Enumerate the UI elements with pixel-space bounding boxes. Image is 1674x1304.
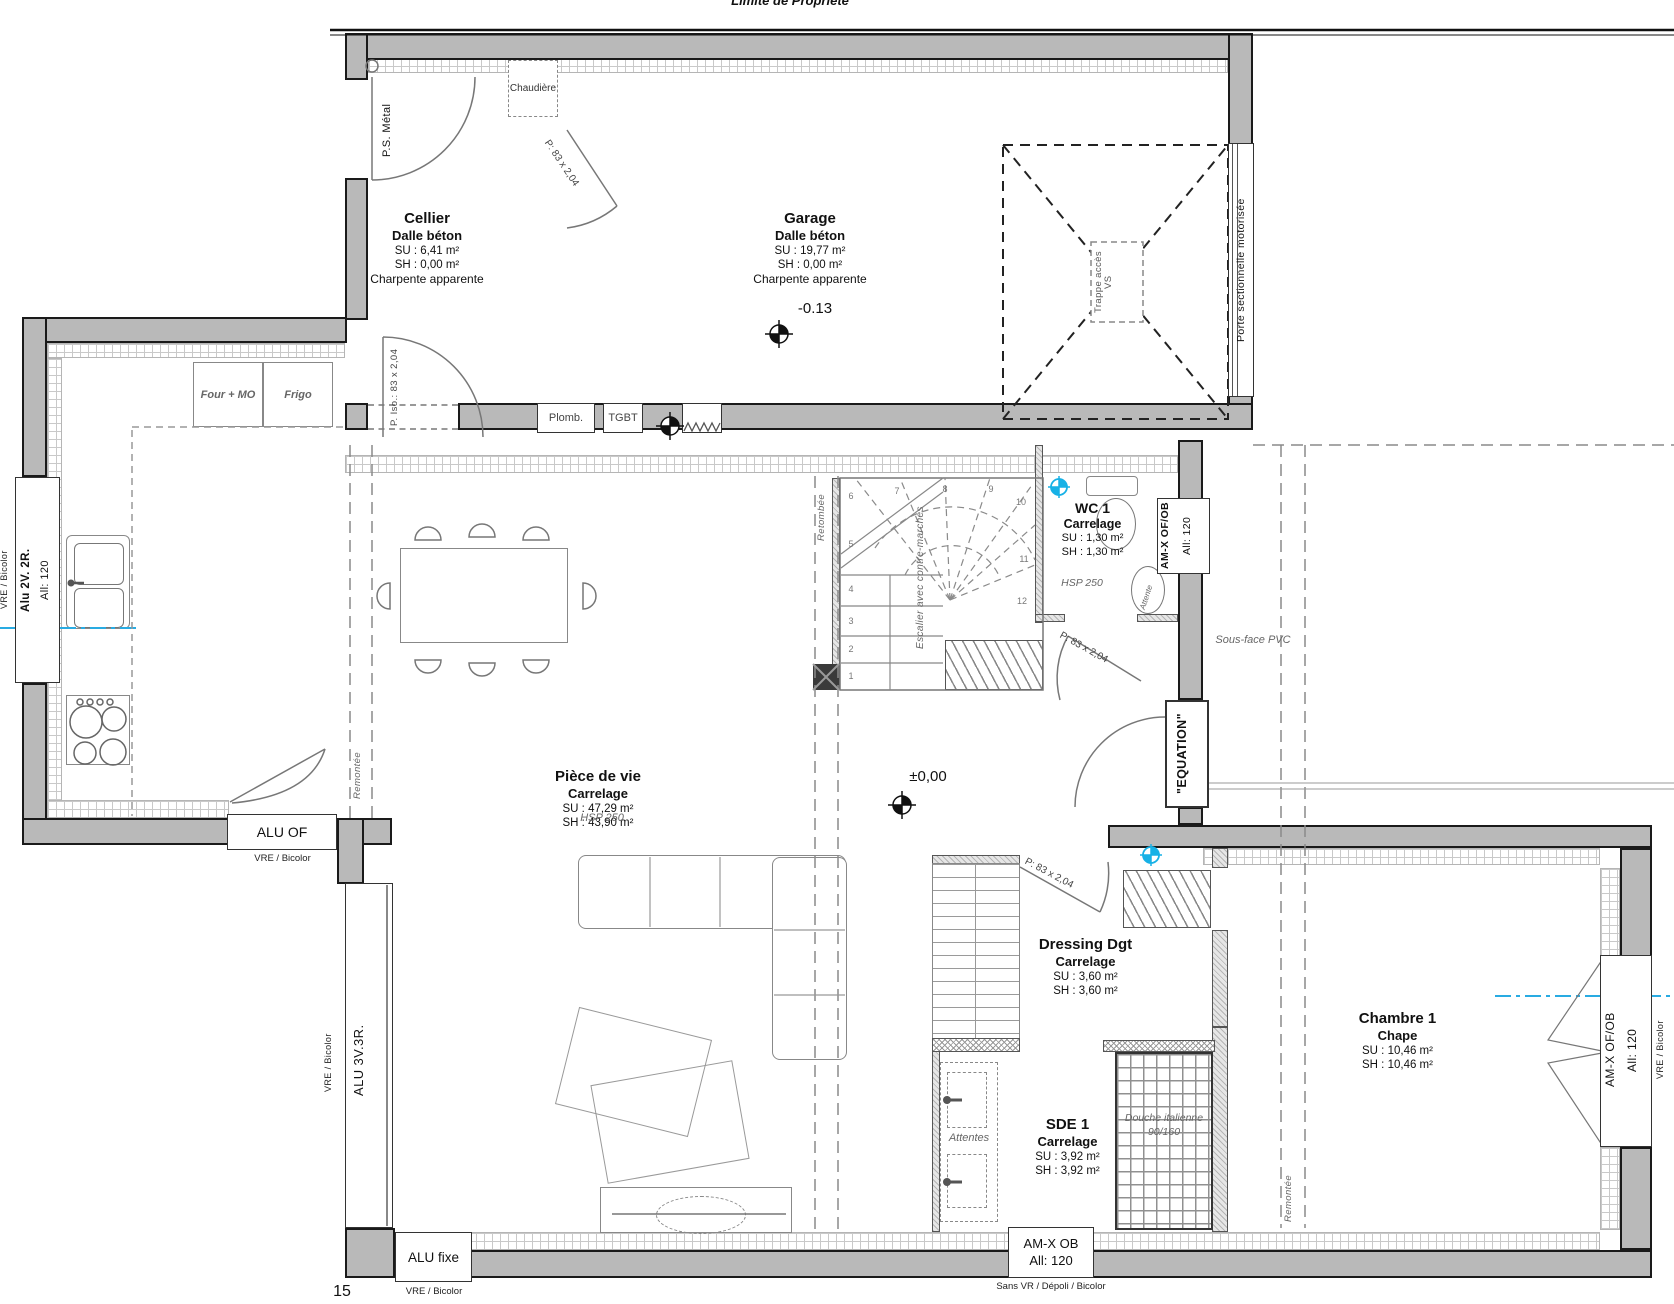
pass-through <box>368 404 458 430</box>
room-chambre1: Chambre 1 Chape SU : 10,46 m² SH : 10,46… <box>1315 1010 1480 1072</box>
radiator-box <box>682 403 722 433</box>
room-sh: SH : 0,00 m² <box>347 258 507 272</box>
insulation-hatch <box>1600 1147 1620 1230</box>
wall-corner-sw <box>345 1228 395 1278</box>
window-kitchen-left-allege: All: 120 <box>40 495 54 665</box>
room-floor: Carrelage <box>498 786 698 802</box>
wall-garage-right-upper <box>1228 33 1253 145</box>
sofa-chaise <box>772 857 847 1060</box>
room-floor: Carrelage <box>1003 954 1168 970</box>
door-ps-metal-label: P.S. Métal <box>382 92 398 168</box>
window-chambre-note: VRE / Bicolor <box>1656 1005 1669 1095</box>
level-garage: -0.13 <box>780 300 850 318</box>
stair-step-6: 6 <box>843 491 859 502</box>
stair-step-10: 10 <box>1011 497 1031 508</box>
douche-label: Douche italienne <box>1117 1112 1211 1125</box>
room-su: SU : 19,77 m² <box>730 244 890 258</box>
wall-kitchen-left-upper <box>22 317 47 477</box>
sink-basin <box>74 543 124 585</box>
window-alu-fixe-label: ALU fixe <box>408 1250 459 1265</box>
appliance-oven: Four + MO <box>193 362 263 427</box>
partition-stair-west <box>832 478 840 690</box>
oven-label: Four + MO <box>201 389 256 401</box>
room-sh: SH : 1,30 m² <box>1045 546 1140 559</box>
room-sh: SH : 3,60 m² <box>1003 984 1168 998</box>
room-floor: Dalle béton <box>730 228 890 244</box>
sink-basin <box>74 588 124 628</box>
stair-step-8: 8 <box>937 484 953 495</box>
toilet-tank <box>1086 476 1138 496</box>
stair-step-12: 12 <box>1012 596 1032 607</box>
plumbing-symbol-wc <box>1048 476 1070 498</box>
wall-cellier-left-upper <box>345 33 368 80</box>
remontee-note-kitchen: Remontée <box>353 743 367 807</box>
wall-chambre-right-lower <box>1620 1147 1652 1250</box>
wall-bedroom-top <box>1108 825 1652 848</box>
room-sh: SH : 3,92 m² <box>985 1164 1150 1178</box>
appliance-fridge: Frigo <box>263 362 333 427</box>
room-name: WC 1 <box>1045 500 1140 517</box>
room-floor: Chape <box>1315 1028 1480 1044</box>
room-su: SU : 6,41 m² <box>347 244 507 258</box>
partition-stair-wc <box>1035 445 1043 623</box>
room-note: Charpente apparente <box>730 272 890 287</box>
property-line-label: Limite de Propriété <box>700 0 880 9</box>
dining-table <box>400 548 568 643</box>
tv-unit <box>656 1196 746 1234</box>
door-opening-ps-metal <box>345 80 368 178</box>
wall-kitchen-top <box>22 317 347 343</box>
boiler-label: Chaudière <box>510 83 556 94</box>
window-wc-label: AM-X OF/OB <box>1160 488 1176 584</box>
porch-soffit-edge <box>1208 783 1674 789</box>
level-ground: ±0,00 <box>893 768 963 786</box>
room-name: Garage <box>730 210 890 228</box>
understair-storage <box>945 640 1043 690</box>
future-basin <box>947 1072 987 1128</box>
wall-garage-bottom-left <box>345 403 368 430</box>
wall-east-mid <box>1178 572 1203 700</box>
window-am-x-ob-allege: All: 120 <box>1029 1253 1072 1270</box>
window-kitchen-left-label: Alu 2V. 2R. <box>20 495 36 665</box>
room-garage: Garage Dalle béton SU : 19,77 m² SH : 0,… <box>730 210 890 287</box>
retombee-note: Retombée <box>817 485 831 549</box>
stair-step-7: 7 <box>889 486 905 497</box>
window-alu-fixe: ALU fixe <box>395 1232 472 1282</box>
room-name: Cellier <box>347 210 507 228</box>
room-cellier: Cellier Dalle béton SU : 6,41 m² SH : 0,… <box>347 210 507 287</box>
wall-east-upper <box>1178 440 1203 500</box>
tgbt-label: TGBT <box>608 412 637 424</box>
page-number: 15 <box>322 1282 362 1302</box>
wall-east-lower <box>1178 807 1203 825</box>
insulation-hatch <box>345 455 1178 473</box>
room-floor: Carrelage <box>1045 517 1140 532</box>
tgbt-box: TGBT <box>603 403 643 433</box>
window-alu-fixe-note: VRE / Bicolor <box>392 1286 476 1298</box>
partition-chambre-west <box>1212 848 1228 868</box>
floor-plan: Chaudière Four + MO Frigo Plomb. TGBT <box>0 0 1674 1304</box>
stair-step-5: 5 <box>843 539 859 550</box>
casement-swing <box>1548 960 1602 1145</box>
insulation-hatch <box>47 800 229 818</box>
room-su: SU : 3,60 m² <box>1003 970 1168 984</box>
room-dressing: Dressing Dgt Carrelage SU : 3,60 m² SH :… <box>1003 936 1168 998</box>
insulation-hatch <box>47 343 345 358</box>
stair-step-11: 11 <box>1014 554 1034 565</box>
room-su: SU : 1,30 m² <box>1045 532 1140 545</box>
insulation-hatch <box>1203 848 1600 865</box>
stair-step-3: 3 <box>843 616 859 627</box>
room-su: SU : 3,92 m² <box>985 1150 1150 1164</box>
room-name: Pièce de vie <box>498 768 698 786</box>
stair-step-2: 2 <box>843 644 859 655</box>
partition-wc-south <box>1035 614 1065 622</box>
partition-sde-chambre <box>1212 1027 1228 1232</box>
window-wc-allege: All: 120 <box>1182 495 1196 577</box>
level-target-garage <box>765 320 793 348</box>
kitchen-counter-edge <box>132 427 345 816</box>
window-kitchen-left-note: VRE / Bicolor <box>0 535 12 625</box>
partition-wc-south <box>1137 614 1178 622</box>
plumbing-box: Plomb. <box>537 403 595 433</box>
level-target-ground <box>888 791 916 819</box>
entry-door-label: "EQUATION" <box>1176 704 1196 804</box>
wardrobe-divider <box>975 865 976 1038</box>
wall-kitchen-bottom <box>22 818 229 845</box>
window-chambre-label: AM-X OF/OB <box>1604 985 1622 1115</box>
room-su: SU : 10,46 m² <box>1315 1044 1480 1058</box>
trap-access-label: Trappe accès VS <box>1094 244 1140 320</box>
stair-step-9: 9 <box>983 484 999 495</box>
door-dressing-label: P: 83 x 2,04 <box>1023 856 1075 891</box>
room-note: Charpente apparente <box>347 272 507 287</box>
hsp-note-wc: HSP 250 <box>1052 577 1112 590</box>
door-kitchen-south <box>230 749 325 803</box>
window-am-x-ob: AM-X OB All: 120 <box>1008 1227 1094 1278</box>
sous-face-note: Sous-face PVC <box>1203 634 1303 647</box>
room-floor: Dalle béton <box>347 228 507 244</box>
insulation-hatch <box>1600 868 1620 957</box>
hsp-note: HSP 250 <box>572 812 632 825</box>
stair-label: Escalier avec contre-marches <box>916 495 932 660</box>
garage-door-label: Porte sectionnelle motorisée <box>1236 165 1251 375</box>
window-alu-of: ALU OF <box>227 814 337 850</box>
door-wc-label: P: 83 x 2,04 <box>1058 630 1110 665</box>
plumbing-label: Plomb. <box>549 412 583 424</box>
window-chambre-allege: All: 120 <box>1626 1000 1642 1100</box>
wall-garage-top <box>345 33 1253 60</box>
cooktop <box>66 695 130 765</box>
door-cellier-garage-label: P: 83 x 2,04 <box>542 138 581 188</box>
room-sh: SH : 10,46 m² <box>1315 1058 1480 1072</box>
attentes-label: Attentes <box>939 1132 999 1145</box>
room-name: Chambre 1 <box>1315 1010 1480 1028</box>
remontee-note-chambre: Remontée <box>1284 1166 1298 1230</box>
partition-chambre-west <box>1212 930 1228 1027</box>
room-wc1: WC 1 Carrelage SU : 1,30 m² SH : 1,30 m² <box>1045 500 1140 559</box>
wall-corner <box>337 818 364 884</box>
window-am-x-ob-note: Sans VR / Dépoli / Bicolor <box>985 1281 1117 1293</box>
insulation-hatch <box>395 1232 1600 1250</box>
window-bay-note: VRE / Bicolor <box>324 1018 337 1108</box>
room-sh: SH : 0,00 m² <box>730 258 890 272</box>
window-bay-glass-line <box>386 885 388 1226</box>
hatched-cabinet <box>1123 870 1211 928</box>
douche-dim: 90/160 <box>1117 1126 1211 1139</box>
future-basin <box>947 1154 987 1208</box>
window-alu-of-label: ALU OF <box>257 824 308 840</box>
stair-step-1: 1 <box>843 671 859 682</box>
door-entry-arc <box>1075 717 1165 807</box>
window-bay-label: ALU 3V.3R. <box>352 1000 372 1120</box>
door-iso-label: P. Iso.: 83 x 2,04 <box>390 335 405 439</box>
stair-step-4: 4 <box>843 584 859 595</box>
boiler-box: Chaudière <box>508 60 558 117</box>
wall-chambre-right-upper <box>1620 848 1652 957</box>
room-name: Dressing Dgt <box>1003 936 1168 954</box>
shower-screen <box>1103 1040 1215 1052</box>
window-am-x-ob-label: AM-X OB <box>1024 1236 1079 1253</box>
fridge-label: Frigo <box>284 389 312 401</box>
wardrobe-base <box>932 1038 1020 1052</box>
window-alu-of-note: VRE / Bicolor <box>235 853 330 865</box>
structural-post <box>813 664 839 690</box>
